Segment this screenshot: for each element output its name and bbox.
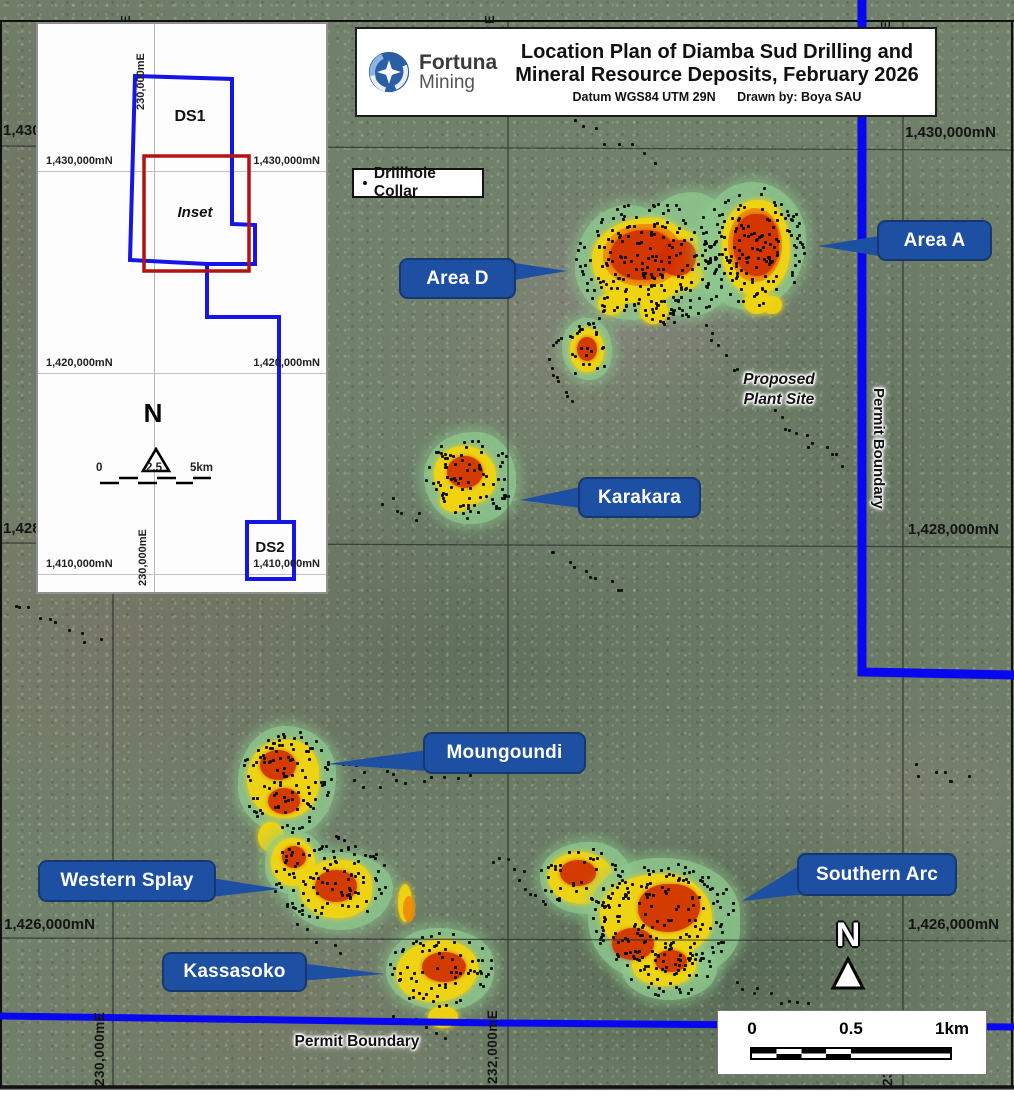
drillhole-collar-dot <box>499 465 502 468</box>
inset-northing-1430-left: 1,430,000mN <box>46 155 113 167</box>
drillhole-collar-dot <box>697 312 700 315</box>
drillhole-collar-dot <box>590 350 593 353</box>
drillhole-collar-dot <box>393 967 396 970</box>
drillhole-collar-dot <box>268 787 271 790</box>
drillhole-collar-dot <box>631 143 634 146</box>
drillhole-collar-dot <box>764 275 767 278</box>
drillhole-collar-dot <box>617 920 620 923</box>
drillhole-collar-dot <box>753 992 756 995</box>
drillhole-collar-dot <box>279 784 282 787</box>
drillhole-collar-dot <box>660 869 663 872</box>
drillhole-collar-dot <box>301 769 304 772</box>
permit-boundary-right-label: Permit Boundary <box>870 388 887 518</box>
drillhole-collar-dot <box>603 365 606 368</box>
drillhole-collar-dot <box>625 288 628 291</box>
drillhole-collar-dot <box>702 907 705 910</box>
drillhole-collar-dot <box>347 878 350 881</box>
drillhole-collar-dot <box>392 497 395 500</box>
drillhole-collar-dot <box>280 886 283 889</box>
drillhole-collar-dot <box>794 254 797 257</box>
drillhole-collar-dot <box>775 288 778 291</box>
drillhole-collar-dot <box>574 355 577 358</box>
drillhole-collar-dot <box>772 280 775 283</box>
drillhole-collar-dot <box>612 217 615 220</box>
drillhole-collar-dot <box>467 481 470 484</box>
northing-1428-right-label: 1,428,000mN <box>908 521 999 538</box>
drillhole-collar-dot <box>657 304 660 307</box>
drillhole-collar-dot <box>730 255 733 258</box>
drillhole-collar-dot <box>679 252 682 255</box>
drillhole-collar-dot <box>273 781 276 784</box>
drillhole-collar-dot <box>680 288 683 291</box>
drillhole-collar-dot <box>618 143 621 146</box>
drillhole-collar-dot <box>243 764 246 767</box>
drillhole-collar-dot <box>353 853 356 856</box>
drillhole-collar-dot <box>798 260 801 263</box>
drillhole-collar-dot <box>323 781 326 784</box>
drillhole-collar-dot <box>481 947 484 950</box>
legend-label: Drillhole Collar <box>374 165 482 201</box>
drillhole-collar-dot <box>753 232 756 235</box>
drillhole-collar-dot <box>461 488 464 491</box>
fortuna-logo-icon <box>367 50 411 94</box>
drillhole-collar-dot <box>491 498 494 501</box>
drillhole-collar-dot <box>597 901 600 904</box>
drillhole-collar-dot <box>644 913 647 916</box>
northing-1426-left-label: 1,426,000mN <box>4 916 95 933</box>
north-arrow-n-label: N <box>826 918 870 952</box>
drillhole-collar-dot <box>798 222 801 225</box>
drillhole-collar-dot <box>263 757 266 760</box>
drillhole-collar-dot <box>616 886 619 889</box>
drillhole-collar-dot <box>430 776 433 779</box>
drillhole-collar-dot <box>394 951 397 954</box>
drillhole-collar-dot <box>569 561 572 564</box>
drillhole-collar-dot <box>751 281 754 284</box>
drillhole-collar-dot <box>747 256 750 259</box>
drillhole-collar-dot <box>619 234 622 237</box>
drillhole-collar-dot <box>679 936 682 939</box>
drillhole-collar-dot <box>663 289 666 292</box>
drillhole-collar-dot <box>638 242 641 245</box>
north-arrow: N <box>826 918 870 997</box>
drillhole-collar-dot <box>466 517 469 520</box>
drillhole-collar-dot <box>791 274 794 277</box>
drillhole-collar-dot <box>646 883 649 886</box>
drillhole-collar-dot <box>262 754 265 757</box>
drillhole-collar-dot <box>348 763 351 766</box>
drillhole-collar-dot <box>316 892 319 895</box>
drillhole-collar-dot <box>286 824 289 827</box>
drillhole-collar-dot <box>614 932 617 935</box>
drillhole-collar-dot <box>623 205 626 208</box>
drillhole-collar-dot <box>337 837 340 840</box>
drillhole-collar-dot <box>647 965 650 968</box>
drillhole-collar-dot <box>54 621 57 624</box>
drillhole-collar-dot <box>413 972 416 975</box>
drillhole-collar-dot <box>678 208 681 211</box>
drillhole-collar-dot <box>595 127 598 130</box>
drillhole-collar-dot <box>595 868 598 871</box>
drillhole-collar-dot <box>378 888 381 891</box>
drillhole-collar-dot <box>444 948 447 951</box>
drillhole-collar-dot <box>249 779 252 782</box>
drillhole-collar-dot <box>415 980 418 983</box>
drillhole-collar-dot <box>667 209 670 212</box>
drillhole-collar-dot <box>438 952 441 955</box>
drillhole-collar-dot <box>637 928 640 931</box>
drillhole-collar-dot <box>755 266 758 269</box>
drillhole-collar-dot <box>375 879 378 882</box>
drillhole-collar-dot <box>710 245 713 248</box>
drillhole-collar-dot <box>668 948 671 951</box>
drillhole-collar-dot <box>695 974 698 977</box>
drillhole-collar-dot <box>454 976 457 979</box>
drillhole-collar-dot <box>275 750 278 753</box>
drillhole-collar-dot <box>835 453 838 456</box>
drillhole-collar-dot <box>694 919 697 922</box>
drillhole-collar-dot <box>703 883 706 886</box>
drillhole-collar-dot <box>469 774 472 777</box>
drillhole-collar-dot <box>639 285 642 288</box>
drillhole-collar-dot <box>647 869 650 872</box>
drillhole-collar-dot <box>638 959 641 962</box>
callout-moungoundi: Moungoundi <box>423 732 586 774</box>
drillhole-collar-dot <box>705 324 708 327</box>
drillhole-collar-dot <box>637 302 640 305</box>
inset-ds1-outline <box>130 76 255 264</box>
drillhole-collar-dot <box>688 919 691 922</box>
drillhole-collar-dot <box>329 863 332 866</box>
drillhole-collar-dot <box>297 842 300 845</box>
drillhole-collar-dot <box>291 758 294 761</box>
drillhole-collar-dot <box>657 268 660 271</box>
drillhole-collar-dot <box>603 305 606 308</box>
drillhole-collar-dot <box>675 290 678 293</box>
drillhole-collar-dot <box>320 749 323 752</box>
drillhole-collar-dot <box>469 510 472 513</box>
drillhole-collar-dot <box>690 988 693 991</box>
drillhole-collar-dot <box>304 883 307 886</box>
drillhole-collar-dot <box>681 269 684 272</box>
drillhole-collar-dot <box>590 278 593 281</box>
drillhole-collar-dot <box>39 617 42 620</box>
drillhole-collar-dot <box>290 743 293 746</box>
drillhole-collar-dot <box>664 942 667 945</box>
drillhole-collar-dot <box>597 234 600 237</box>
drillhole-collar-dot <box>577 249 580 252</box>
drillhole-collar-dot <box>497 478 500 481</box>
drillhole-collar-dot <box>650 905 653 908</box>
drillhole-collar-dot <box>695 953 698 956</box>
drillhole-collar-dot <box>312 877 315 880</box>
drillhole-collar-dot <box>290 854 293 857</box>
drillhole-collar-dot <box>609 897 612 900</box>
drillhole-collar-dot <box>585 354 588 357</box>
drillhole-collar-dot <box>692 870 695 873</box>
drillhole-collar-dot <box>718 214 721 217</box>
drillhole-collar-dot <box>738 194 741 197</box>
drillhole-collar-dot <box>305 742 308 745</box>
drillhole-collar-dot <box>469 969 472 972</box>
drillhole-collar-dot <box>479 468 482 471</box>
drillhole-collar-dot <box>694 958 697 961</box>
drillhole-collar-dot <box>552 551 555 554</box>
drillhole-collar-dot <box>465 446 468 449</box>
drillhole-collar-dot <box>598 317 601 320</box>
drillhole-collar-dot <box>600 852 603 855</box>
drillhole-collar-dot <box>498 857 501 860</box>
drillhole-collar-dot <box>278 744 281 747</box>
drillhole-collar-dot <box>438 984 441 987</box>
drillhole-collar-dot <box>479 496 482 499</box>
drillhole-collar-dot <box>691 954 694 957</box>
drillhole-collar-dot <box>592 322 595 325</box>
drillhole-collar-dot <box>485 495 488 498</box>
drillhole-collar-dot <box>580 881 583 884</box>
drillhole-collar-dot <box>574 119 577 122</box>
drillhole-collar-dot <box>720 286 723 289</box>
drillhole-collar-dot <box>299 731 302 734</box>
drillhole-collar-dot <box>579 265 582 268</box>
drillhole-collar-dot <box>675 254 678 257</box>
logo-wordmark-line1: Fortuna <box>419 52 497 73</box>
drillhole-collar-dot <box>688 974 691 977</box>
drillhole-collar-dot <box>646 266 649 269</box>
drillhole-collar-dot <box>672 239 675 242</box>
drillhole-collar-dot <box>477 440 480 443</box>
drillhole-collar-dot <box>589 259 592 262</box>
drillhole-collar-dot <box>761 208 764 211</box>
drillhole-collar-dot <box>592 917 595 920</box>
drillhole-collar-dot <box>408 997 411 1000</box>
drillhole-collar-dot <box>949 780 952 783</box>
drillhole-collar-dot <box>293 737 296 740</box>
drillhole-collar-dot <box>670 919 673 922</box>
drillhole-collar-dot <box>469 487 472 490</box>
drillhole-collar-dot <box>589 857 592 860</box>
drillhole-collar-dot <box>664 226 667 229</box>
drillhole-collar-dot <box>601 933 604 936</box>
drillhole-collar-dot <box>591 297 594 300</box>
drillhole-collar-dot <box>780 1002 783 1005</box>
drillhole-collar-dot <box>664 946 667 949</box>
drillhole-collar-dot <box>476 972 479 975</box>
drillhole-collar-dot <box>663 924 666 927</box>
drillhole-collar-dot <box>594 577 597 580</box>
inset-northing-1420-right: 1,420,000mN <box>253 357 320 369</box>
drillhole-collar-dot <box>663 300 666 303</box>
drillhole-collar-dot <box>246 758 249 761</box>
easting-230-label: 230,000mE <box>92 1000 107 1086</box>
drillhole-collar-dot <box>652 870 655 873</box>
drillhole-collar-dot <box>505 455 508 458</box>
drillhole-collar-dot <box>356 905 359 908</box>
drillhole-collar-dot <box>628 225 631 228</box>
drillhole-collar-dot <box>477 959 480 962</box>
drillhole-collar-dot <box>443 776 446 779</box>
drillhole-collar-dot <box>676 231 679 234</box>
drillhole-collar-dot <box>651 318 654 321</box>
drillhole-collar-dot <box>721 226 724 229</box>
drillhole-collar-dot <box>627 235 630 238</box>
drillhole-collar-dot <box>788 1000 791 1003</box>
drillhole-collar-dot <box>715 921 718 924</box>
drillhole-collar-dot <box>381 503 384 506</box>
drillhole-collar-dot <box>743 206 746 209</box>
drillhole-collar-dot <box>640 885 643 888</box>
drillhole-collar-dot <box>585 887 588 890</box>
drillhole-collar-dot <box>682 219 685 222</box>
drillhole-collar-dot <box>261 812 264 815</box>
drillhole-collar-dot <box>311 747 314 750</box>
drillhole-collar-dot <box>764 290 767 293</box>
drillhole-collar-dot <box>603 906 606 909</box>
drillhole-collar-dot <box>354 845 357 848</box>
drillhole-collar-dot <box>677 958 680 961</box>
drillhole-collar-dot <box>490 959 493 962</box>
drillhole-collar-dot <box>592 848 595 851</box>
drillhole-collar-dot <box>644 309 647 312</box>
drillhole-collar-dot <box>450 486 453 489</box>
drillhole-collar-dot <box>716 223 719 226</box>
drillhole-collar-dot <box>701 952 704 955</box>
drillhole-collar-dot <box>601 265 604 268</box>
drillhole-collar-dot <box>720 941 723 944</box>
drillhole-collar-dot <box>627 897 630 900</box>
drillhole-collar-dot <box>291 798 294 801</box>
drillhole-collar-dot <box>418 512 421 515</box>
drillhole-collar-dot <box>609 251 612 254</box>
drillhole-collar-dot <box>693 942 696 945</box>
drillhole-collar-dot <box>295 784 298 787</box>
drillhole-collar-dot <box>471 960 474 963</box>
drillhole-collar-dot <box>400 512 403 515</box>
drillhole-collar-dot <box>742 227 745 230</box>
drillhole-collar-dot <box>459 999 462 1002</box>
drillhole-collar-dot <box>428 949 431 952</box>
drillhole-collar-dot <box>657 954 660 957</box>
drillhole-collar-dot <box>481 959 484 962</box>
drillhole-collar-dot <box>288 873 291 876</box>
drillhole-collar-dot <box>575 890 578 893</box>
drillhole-collar-dot <box>688 871 691 874</box>
drillhole-collar-dot <box>263 785 266 788</box>
drillhole-collar-dot <box>630 978 633 981</box>
drillhole-collar-dot <box>675 908 678 911</box>
drillhole-collar-dot <box>635 216 638 219</box>
drillhole-collar-dot <box>308 915 311 918</box>
drawn-by-label: Drawn by: Boya SAU <box>737 90 861 104</box>
drillhole-collar-dot <box>616 287 619 290</box>
drillhole-collar-dot <box>341 894 344 897</box>
drillhole-collar-dot <box>623 261 626 264</box>
drillhole-collar-dot <box>781 416 784 419</box>
drillhole-collar-dot <box>412 996 415 999</box>
drillhole-collar-dot <box>602 929 605 932</box>
drillhole-collar-dot <box>485 975 488 978</box>
inset-north-label: N <box>133 398 173 429</box>
inset-ds1-label: DS1 <box>165 108 215 126</box>
drillhole-collar-dot <box>454 511 457 514</box>
drillhole-collar-dot <box>727 199 730 202</box>
drillhole-collar-dot <box>729 272 732 275</box>
scalebar-mid: 0.5 <box>839 1019 863 1039</box>
drillhole-collar-dot <box>723 220 726 223</box>
drillhole-collar-dot <box>647 973 650 976</box>
drillhole-collar-dot <box>446 476 449 479</box>
drillhole-collar-dot <box>786 229 789 232</box>
drillhole-collar-dot <box>793 244 796 247</box>
drillhole-collar-dot <box>659 320 662 323</box>
drillhole-collar-dot <box>399 978 402 981</box>
drillhole-collar-dot <box>332 850 335 853</box>
drillhole-collar-dot <box>534 894 537 897</box>
drillhole-collar-dot <box>624 256 627 259</box>
drillhole-collar-dot <box>614 868 617 871</box>
drillhole-collar-dot <box>507 858 510 861</box>
drillhole-collar-dot <box>667 867 670 870</box>
drillhole-collar-dot <box>724 201 727 204</box>
drillhole-collar-dot <box>730 267 733 270</box>
drillhole-collar-dot <box>701 876 704 879</box>
drillhole-collar-dot <box>321 881 324 884</box>
drillhole-collar-dot <box>362 876 365 879</box>
drillhole-collar-dot <box>455 1001 458 1004</box>
drillhole-collar-dot <box>681 314 684 317</box>
drillhole-collar-dot <box>811 442 814 445</box>
drillhole-collar-dot <box>684 288 687 291</box>
drillhole-collar-dot <box>482 985 485 988</box>
drillhole-collar-dot <box>602 901 605 904</box>
drillhole-collar-dot <box>445 1004 448 1007</box>
drillhole-collar-dot <box>596 857 599 860</box>
drillhole-collar-dot <box>380 892 383 895</box>
drillhole-collar-dot <box>665 892 668 895</box>
drillhole-collar-dot <box>633 304 636 307</box>
drillhole-collar-dot <box>662 236 665 239</box>
drillhole-collar-dot <box>776 219 779 222</box>
drillhole-collar-dot <box>708 960 711 963</box>
drillhole-collar-dot <box>758 236 761 239</box>
drillhole-collar-dot <box>391 973 394 976</box>
drillhole-collar-dot <box>655 307 658 310</box>
drillhole-collar-dot <box>592 858 595 861</box>
drillhole-collar-dot <box>406 966 409 969</box>
drillhole-collar-dot <box>784 428 787 431</box>
drillhole-collar-dot <box>485 475 488 478</box>
drillhole-collar-dot <box>582 273 585 276</box>
drillhole-collar-dot <box>480 972 483 975</box>
drillhole-collar-dot <box>636 951 639 954</box>
drillhole-collar-dot <box>650 300 653 303</box>
drillhole-collar-dot <box>600 221 603 224</box>
drillhole-collar-dot <box>588 323 591 326</box>
drillhole-collar-dot <box>733 246 736 249</box>
drillhole-collar-dot <box>702 216 705 219</box>
drillhole-collar-dot <box>580 347 583 350</box>
drillhole-collar-dot <box>256 797 259 800</box>
drillhole-collar-dot <box>633 225 636 228</box>
drillhole-collar-dot <box>761 234 764 237</box>
drillhole-collar-dot <box>255 761 258 764</box>
drillhole-collar-dot <box>585 570 588 573</box>
drillhole-collar-dot <box>466 469 469 472</box>
drillhole-collar-dot <box>283 767 286 770</box>
drillhole-collar-dot <box>653 277 656 280</box>
drillhole-collar-dot <box>308 820 311 823</box>
drillhole-collar-dot <box>460 454 463 457</box>
